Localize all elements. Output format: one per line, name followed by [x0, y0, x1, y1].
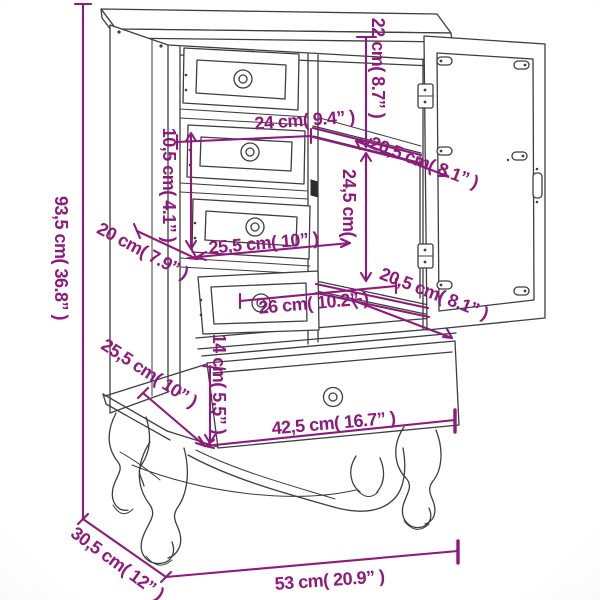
dim-door-interior-height-label: 24,5 cm(: [339, 169, 359, 238]
magnetic-catch: [311, 180, 318, 197]
drawer-2: [187, 125, 305, 184]
dim-upper-drawer-width-label: 24 cm( 9.4” ): [254, 106, 356, 133]
drawer-1: [183, 48, 299, 110]
dim-overall-depth-label: 30,5 cm( 12” ): [67, 523, 168, 600]
cabinet-drawing: [101, 9, 545, 565]
cabinet-line-drawing: 93,5 cm( 36.8” ) 22 cm( 8.7” ) 24 cm( 9.…: [0, 0, 600, 600]
glass-clip: [512, 152, 527, 160]
front-right-leg: [396, 427, 441, 529]
drawer-1-knob: [234, 70, 252, 88]
top-board: [101, 9, 452, 42]
dim-total-height-label: 93,5 cm( 36.8” ): [51, 196, 71, 321]
glass-clip: [514, 61, 529, 69]
drawer-2-knob: [241, 143, 259, 161]
dim-bottom-drawer-height-label: 14 cm( 5.5” ): [209, 334, 229, 435]
diagram-canvas: 93,5 cm( 36.8” ) 22 cm( 8.7” ) 24 cm( 9.…: [0, 0, 600, 600]
glass-clip: [437, 57, 452, 65]
glass-clip: [437, 147, 452, 155]
back-left-leg: [109, 413, 149, 514]
front-left-leg: [139, 442, 187, 565]
door-handle: [533, 173, 542, 198]
dim-upper-drawer-height-label: 10,5 cm( 4.1” ): [159, 128, 179, 243]
dim-top-section-height-label: 22 cm( 8.7” ): [368, 18, 388, 119]
dim-overall-width-label: 53 cm( 20.9” ): [274, 566, 386, 594]
bottom-drawer-knob: [324, 388, 343, 407]
glass-clip: [514, 287, 529, 295]
